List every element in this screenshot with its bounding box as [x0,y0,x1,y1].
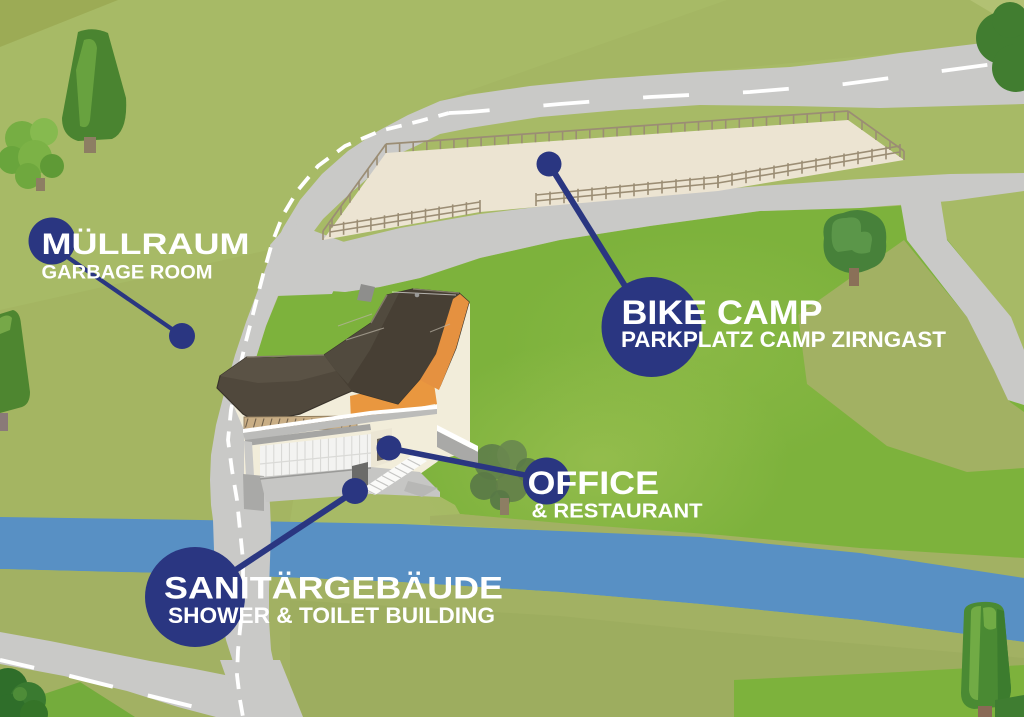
svg-text:SANITÄRGEBÄUDE: SANITÄRGEBÄUDE [164,570,503,606]
svg-text:OFFICE: OFFICE [528,465,660,501]
svg-text:& RESTAURANT: & RESTAURANT [532,501,703,523]
svg-text:GARBAGE ROOM: GARBAGE ROOM [42,263,213,284]
svg-text:PARKPLATZ CAMP ZIRNGAST: PARKPLATZ CAMP ZIRNGAST [621,327,947,352]
svg-text:SHOWER & TOILET BUILDING: SHOWER & TOILET BUILDING [168,603,495,628]
svg-text:MÜLLRAUM: MÜLLRAUM [42,228,250,261]
